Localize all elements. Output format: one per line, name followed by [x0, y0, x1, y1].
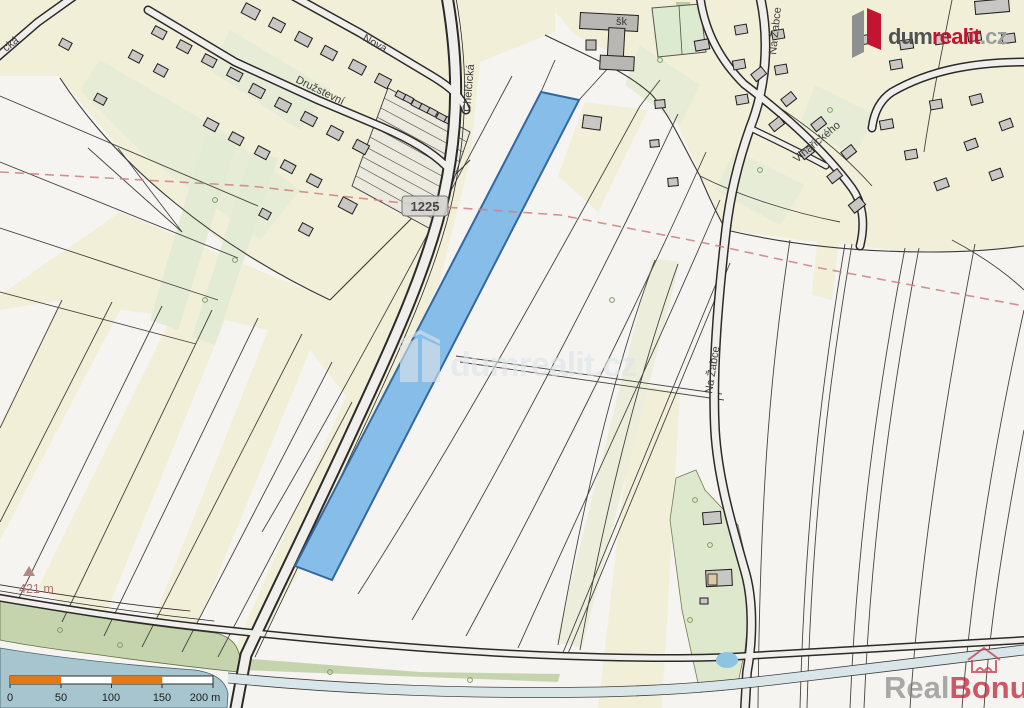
realbonus-part-real: Real — [884, 670, 949, 705]
cadastral-map-view: cká Nová Družstevní Chelčická Na Žabce N… — [0, 0, 1024, 708]
logo-part-dum: dum — [888, 24, 932, 49]
road-number: 1225 — [411, 199, 440, 214]
scale-tick-150: 150 — [153, 692, 171, 704]
logo-part-realit: realit — [932, 24, 981, 49]
scale-tick-50: 50 — [55, 692, 67, 704]
center-watermark-text: dumrealit.cz — [450, 346, 636, 384]
realbonus-text: RealBonus.cz — [884, 670, 1024, 705]
cadastral-map[interactable]: cká Nová Družstevní Chelčická Na Žabce N… — [0, 0, 1024, 708]
school-label: šk — [616, 16, 628, 28]
logo-part-cz: .cz — [980, 24, 1008, 49]
scale-tick-100: 100 — [102, 692, 120, 704]
dumrealit-logo-text: dumrealit.cz — [888, 24, 1008, 49]
pond — [716, 652, 738, 668]
elevation-label: 421 m — [19, 582, 54, 596]
realbonus-part-bonus: Bonus — [949, 670, 1024, 705]
scale-tick-200: 200 m — [190, 692, 221, 704]
road-number-plate: 1225 — [402, 196, 448, 216]
scale-tick-0: 0 — [7, 692, 13, 704]
